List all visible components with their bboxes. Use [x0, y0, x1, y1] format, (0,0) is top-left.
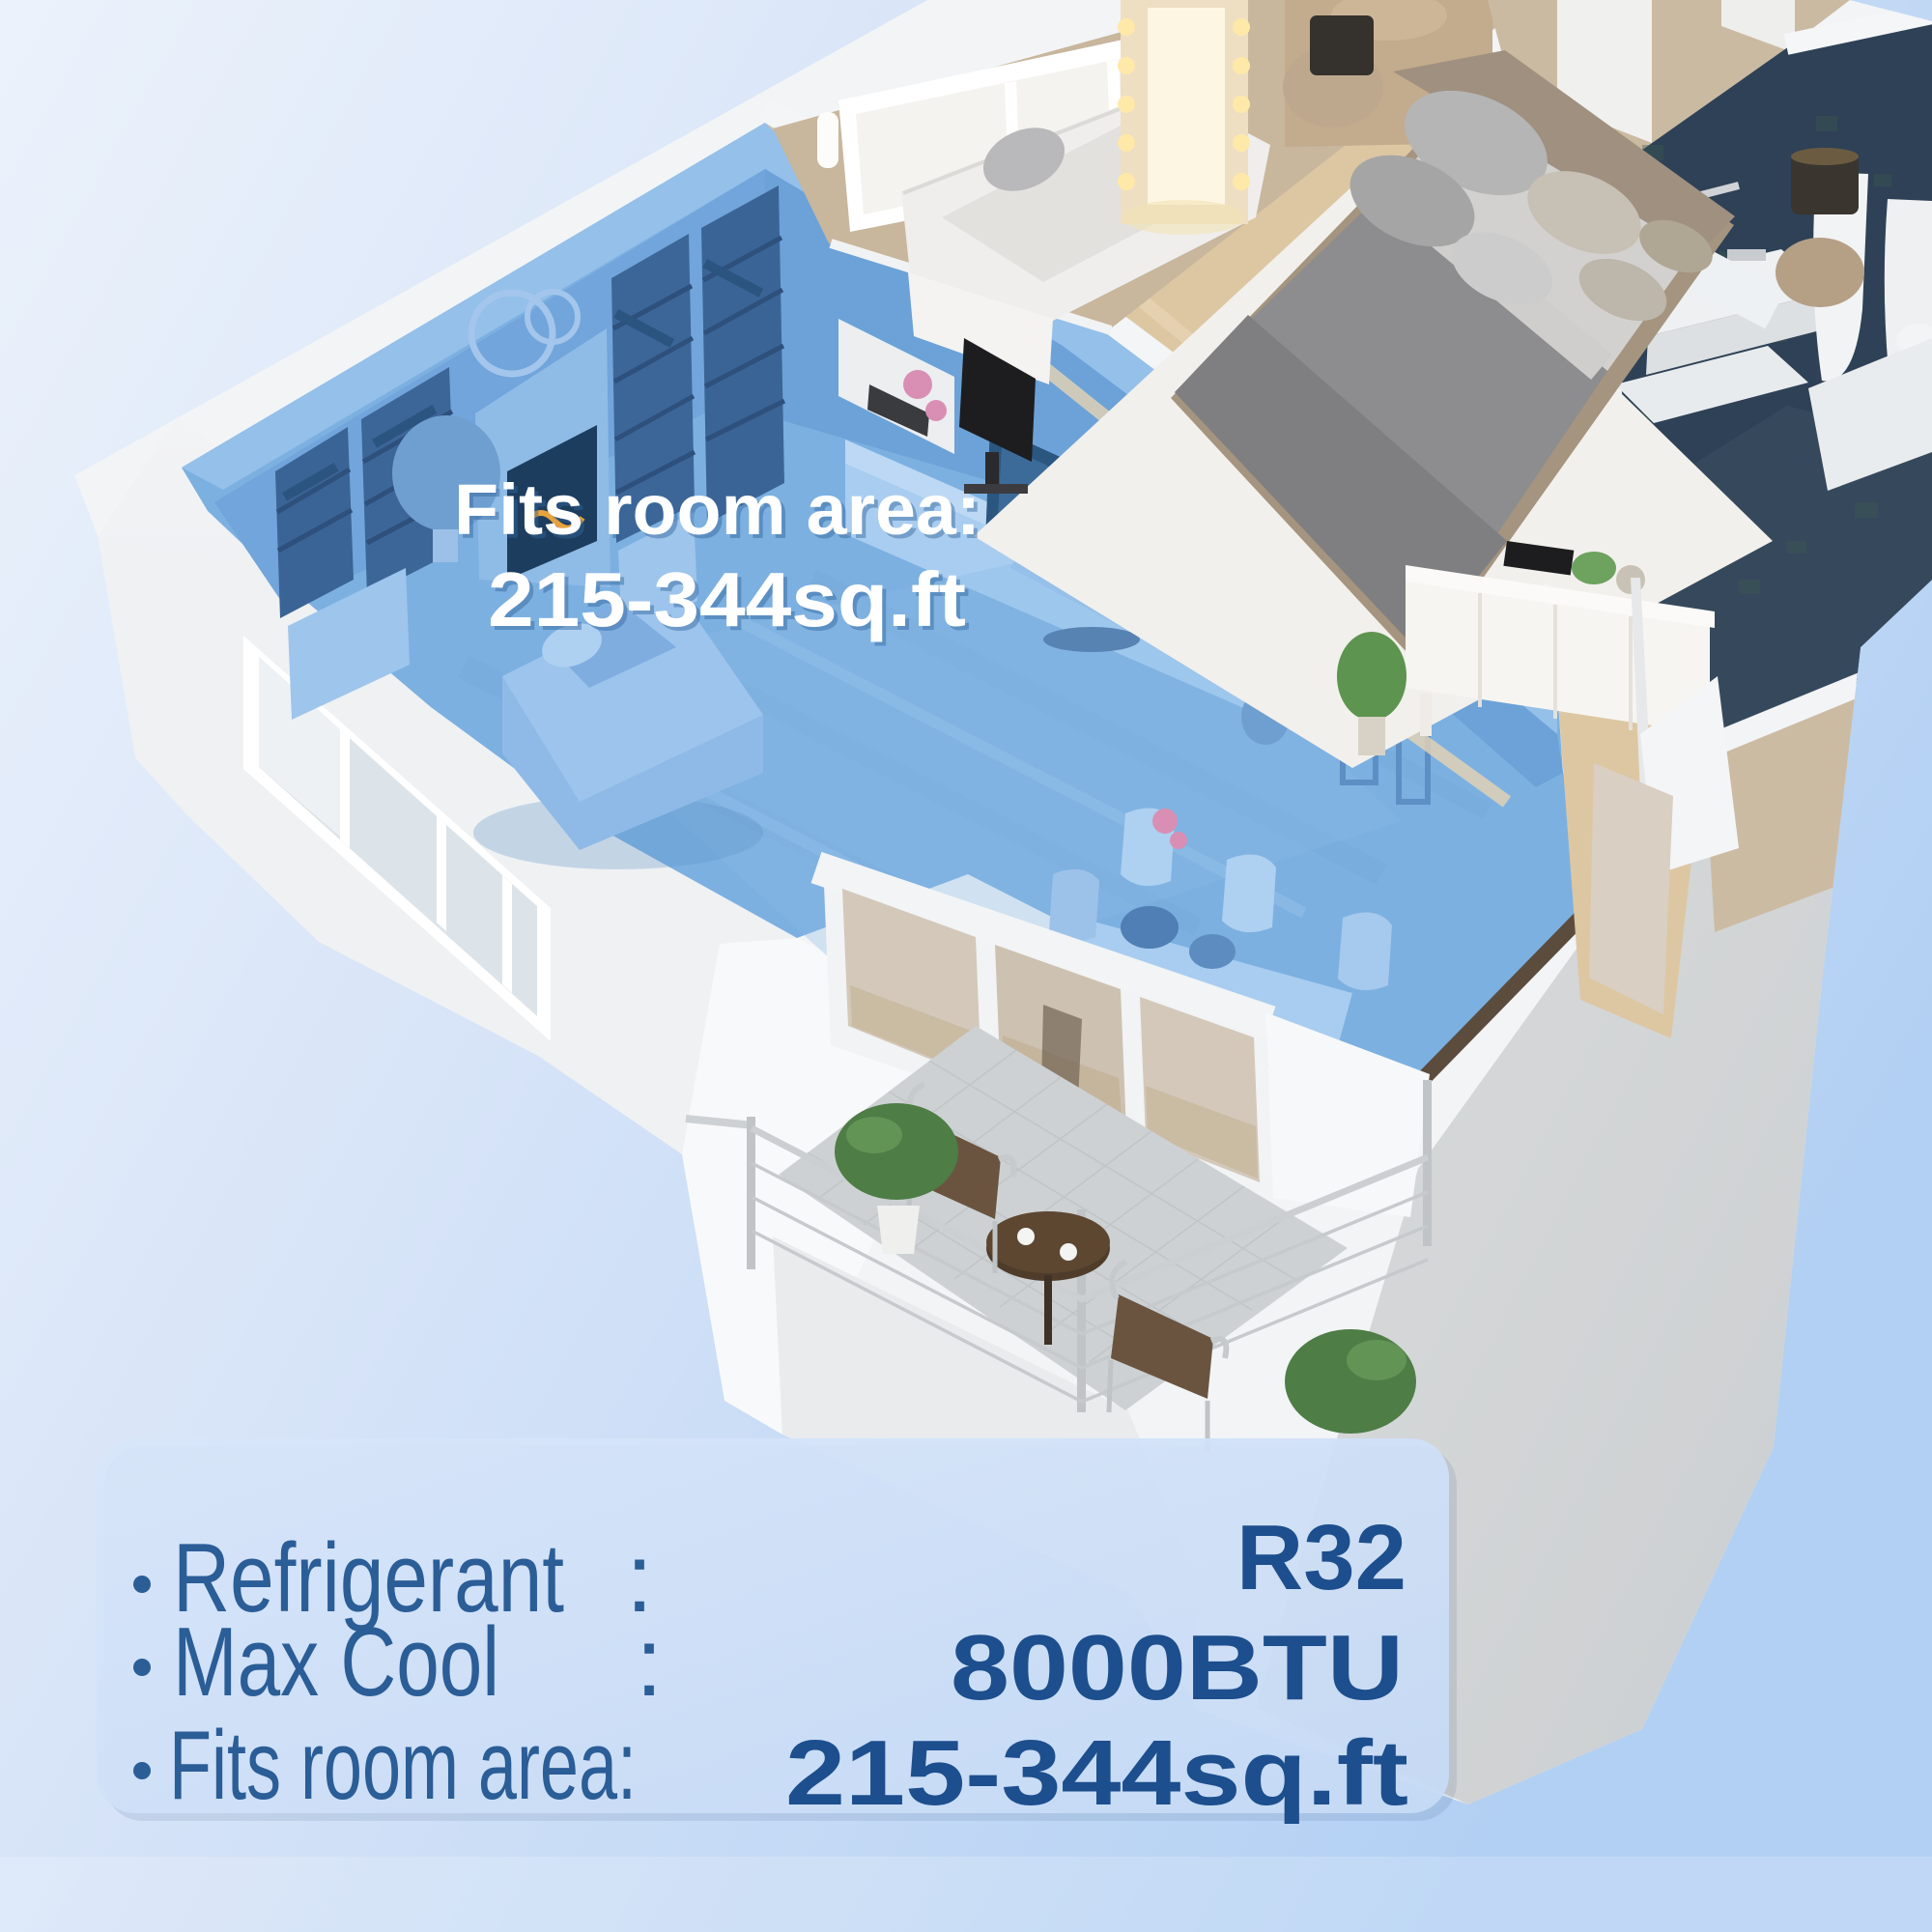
svg-text:215-344sq.ft: 215-344sq.ft — [785, 1721, 1408, 1825]
svg-text:Fits room area:: Fits room area: — [454, 469, 980, 550]
svg-text:Max Cool: Max Cool — [173, 1608, 499, 1717]
svg-text::: : — [636, 1608, 663, 1717]
svg-text:8000BTU: 8000BTU — [951, 1616, 1404, 1719]
svg-text:R32: R32 — [1236, 1506, 1406, 1609]
svg-text:215-344sq.ft: 215-344sq.ft — [488, 556, 966, 642]
svg-text:Fits room area:: Fits room area: — [169, 1712, 637, 1820]
